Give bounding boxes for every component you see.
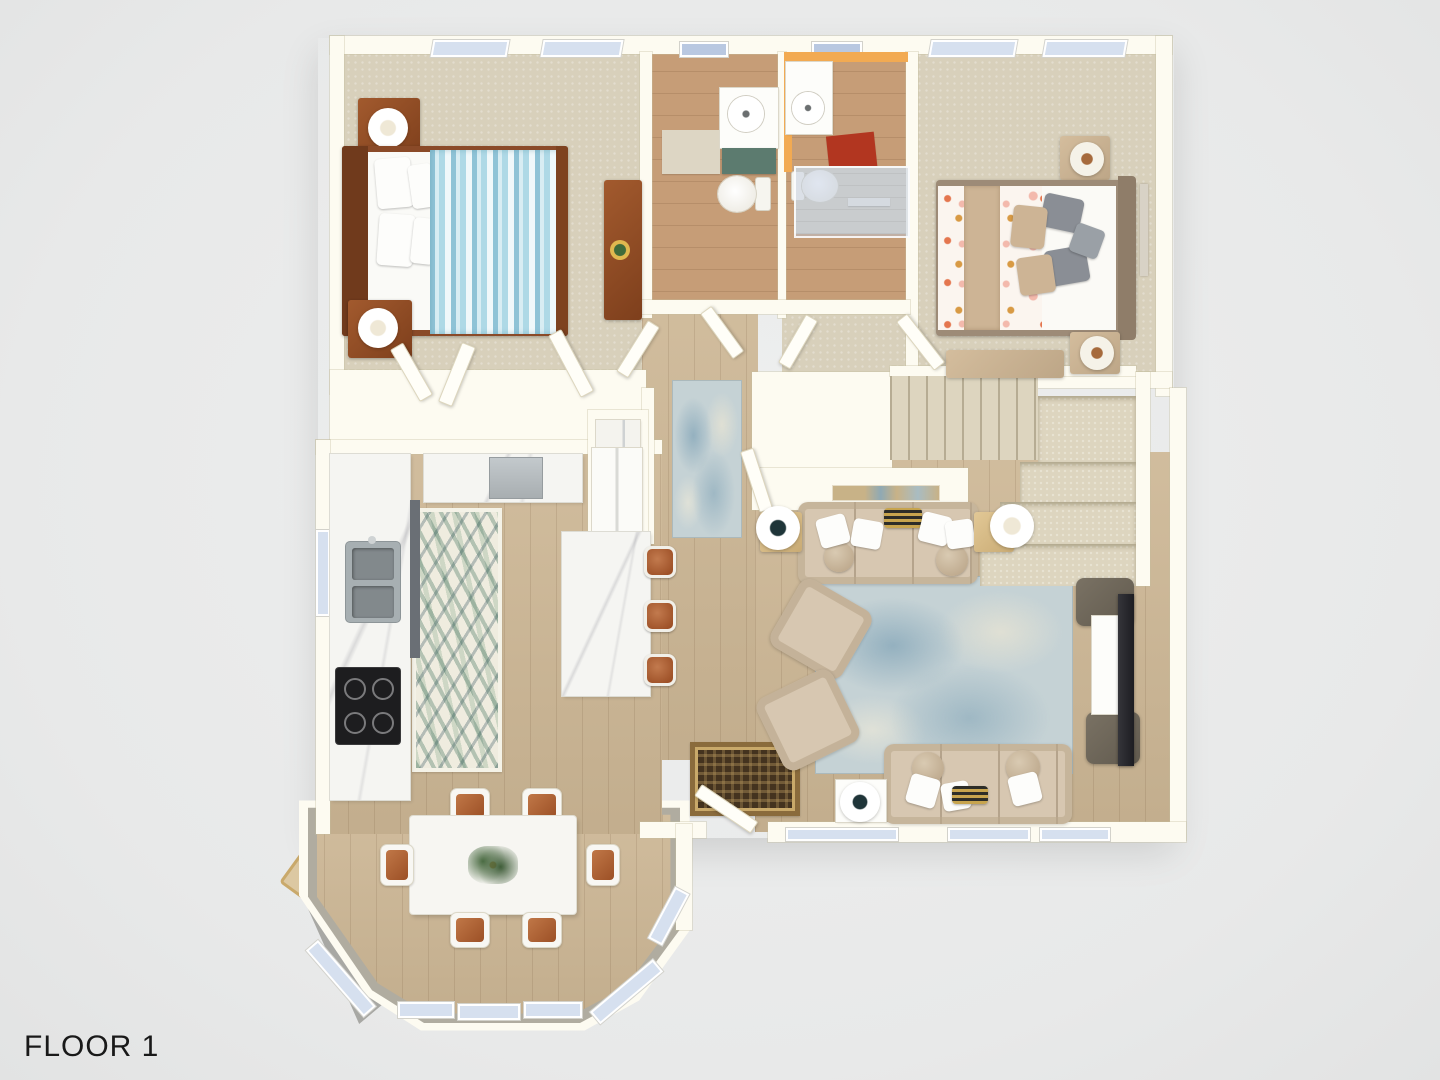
living-rear-window-2 <box>948 828 1030 841</box>
striped-pillow <box>952 786 988 804</box>
wall-living-right <box>1170 388 1186 840</box>
bed-2-pillow-tan <box>1016 254 1057 297</box>
bedroom1-window-2 <box>541 40 624 57</box>
dining-chair <box>450 912 490 948</box>
wall-art <box>1140 184 1148 276</box>
stairwell-wall-block <box>752 372 892 472</box>
cooktop-burner <box>344 678 366 700</box>
dishwasher <box>490 458 542 498</box>
table-lamp <box>756 506 800 550</box>
tv <box>1118 594 1134 766</box>
bed-1-footboard <box>556 146 568 336</box>
bay-window-bottom-3 <box>524 1002 582 1018</box>
dining-chair <box>380 844 414 886</box>
living-rear-window-3 <box>1040 828 1110 841</box>
cooktop-burner <box>344 712 366 734</box>
potted-plant <box>610 240 630 260</box>
cooktop <box>336 668 400 744</box>
bathroom2-sink <box>792 92 824 124</box>
living-rear-window-1 <box>786 828 898 841</box>
cooktop-burner <box>372 712 394 734</box>
glass-shower-enclosure <box>794 166 910 238</box>
bed-1-striped-duvet <box>430 150 562 334</box>
kitchen-counter-left <box>330 454 410 800</box>
table-lamp <box>840 782 880 822</box>
table-lamp <box>1070 142 1104 176</box>
wall-hall-top <box>642 300 910 314</box>
bar-stool <box>644 546 676 578</box>
table-lamp <box>368 108 408 148</box>
bedroom2-window-2 <box>1043 40 1128 57</box>
dining-chair <box>586 844 620 886</box>
wall-kitchen-left <box>316 440 330 834</box>
bathroom1-bath-mat <box>662 130 720 174</box>
kitchen-backsplash-halfwall <box>410 500 420 658</box>
console-table-runner <box>833 486 939 500</box>
refrigerator <box>592 448 642 536</box>
floor-plan-render: FLOOR 1 <box>0 0 1440 1080</box>
stairs-upper-flight <box>890 376 1038 460</box>
wall-entry-left <box>640 822 706 838</box>
table-centerpiece <box>468 846 518 884</box>
wall-right-upper <box>1156 36 1172 396</box>
bathroom1-sink <box>728 96 764 132</box>
wall-stairs-right <box>1136 372 1150 586</box>
bed-1-pillow <box>374 157 414 210</box>
bay-window-bottom-1 <box>398 1002 454 1018</box>
dining-chair <box>522 912 562 948</box>
kitchen-palm-runner-rug <box>412 508 502 772</box>
table-lamp <box>1080 336 1114 370</box>
bar-stool <box>644 600 676 632</box>
stairs-landing <box>1038 396 1136 462</box>
toilet <box>718 176 756 212</box>
table-lamp <box>358 308 398 348</box>
sofa-pillow <box>850 518 884 551</box>
striped-pillow <box>884 508 922 528</box>
bed-2-tan-throw <box>964 186 1000 330</box>
foot-bench <box>946 350 1064 378</box>
faucet <box>368 536 376 544</box>
cooktop-burner <box>372 678 394 700</box>
kitchen-side-window <box>316 530 330 616</box>
bathroom1-skylight <box>680 42 728 57</box>
bathroom2-accent-wall-top <box>784 52 908 62</box>
sink-basin <box>352 548 394 580</box>
bathroom1-vanity-cabinet <box>722 148 776 174</box>
bedroom2-window-1 <box>929 40 1018 57</box>
bay-window-bottom-2 <box>458 1004 520 1020</box>
kitchen-island <box>562 532 650 696</box>
bed-2-headboard <box>1118 176 1136 340</box>
sink-basin <box>352 586 394 618</box>
bed-2-pillow-tan <box>1010 204 1048 249</box>
stairs-step-1 <box>1020 462 1136 502</box>
bar-stool <box>644 654 676 686</box>
table-lamp <box>990 504 1034 548</box>
toilet <box>756 178 770 210</box>
sofa-pillow <box>944 518 976 550</box>
hall-runner-rug <box>672 380 742 538</box>
bedroom1-window-1 <box>431 40 510 57</box>
floor-label: FLOOR 1 <box>24 1030 159 1064</box>
